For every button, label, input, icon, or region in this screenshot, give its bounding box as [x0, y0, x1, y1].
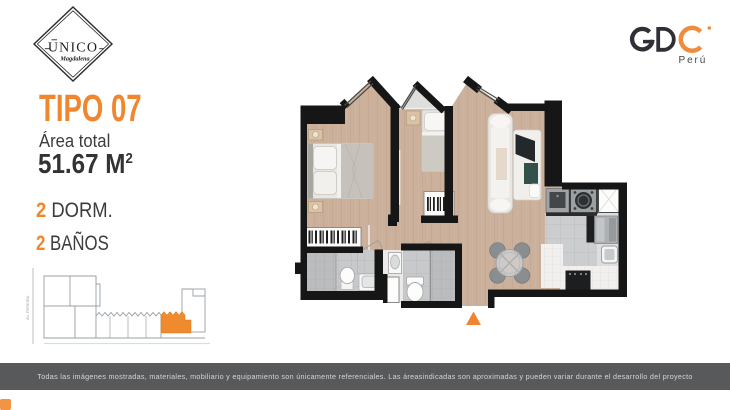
svg-text:AV. PEREIRA: AV. PEREIRA	[25, 295, 30, 320]
